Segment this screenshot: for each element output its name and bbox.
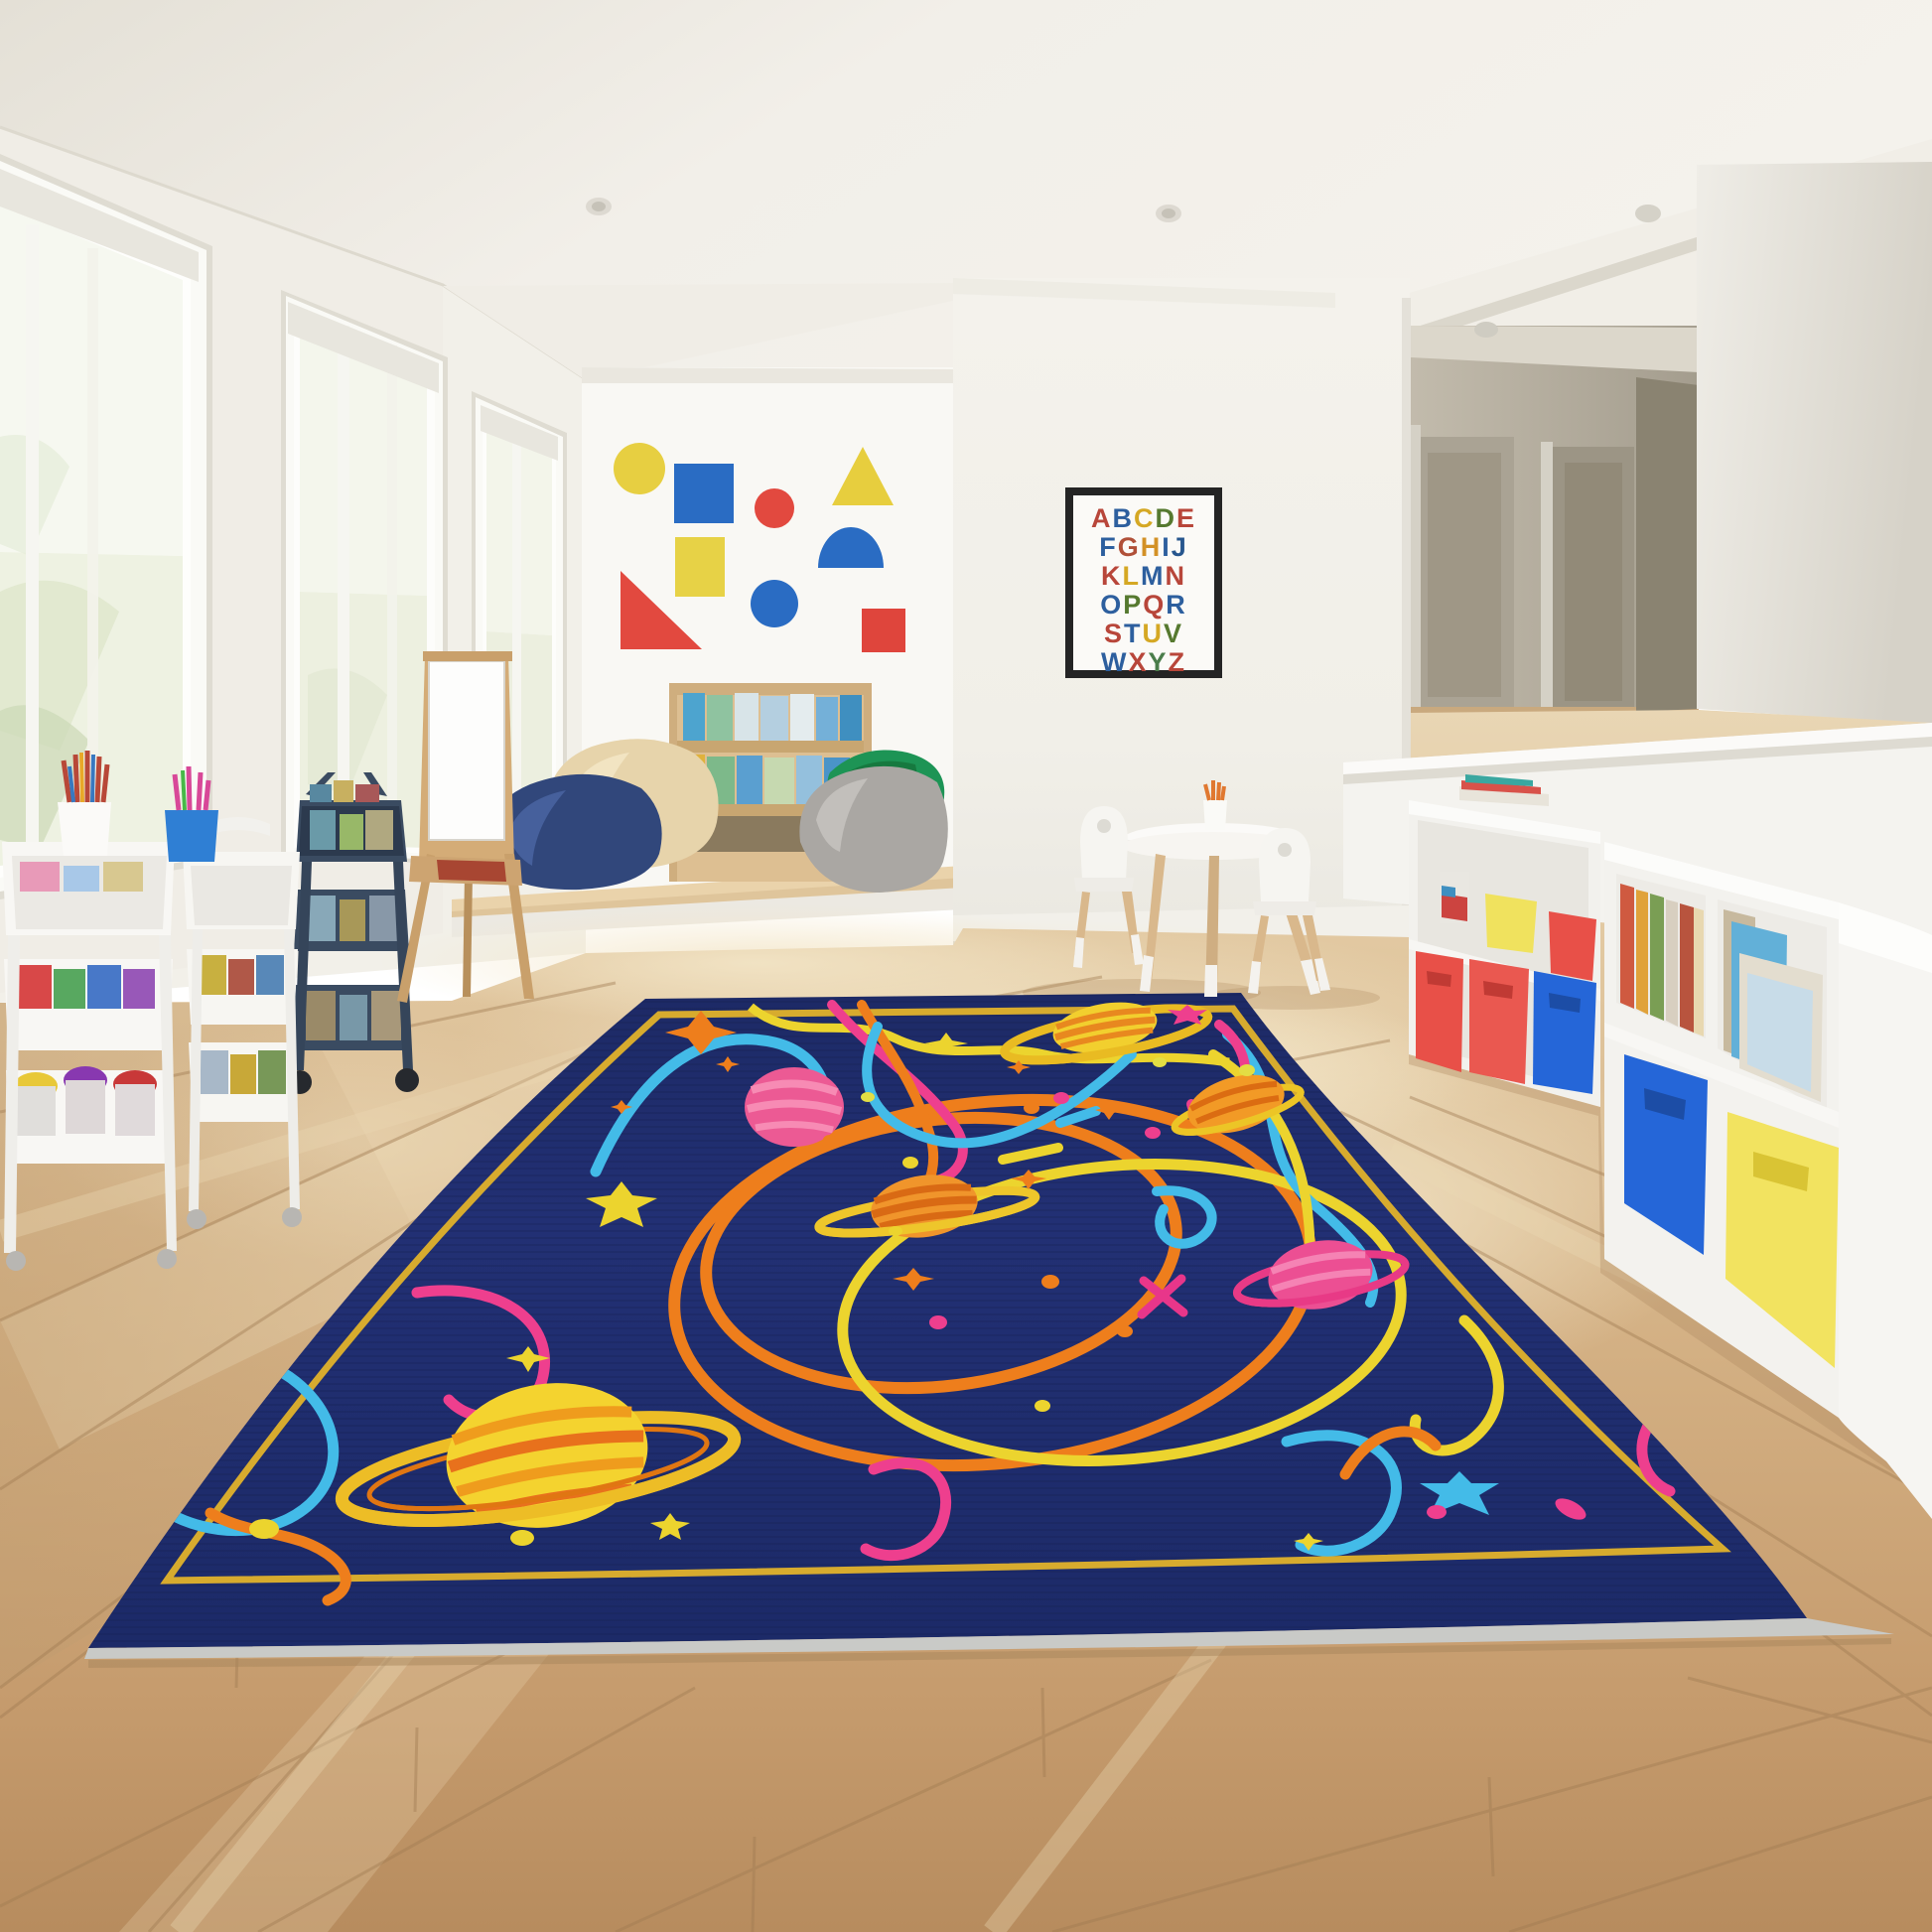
svg-text:KLMN: KLMN — [1101, 561, 1186, 591]
svg-text:WXYZ: WXYZ — [1101, 647, 1186, 677]
svg-text:OPQR: OPQR — [1100, 590, 1187, 620]
svg-text:FGHIJ: FGHIJ — [1099, 532, 1188, 562]
svg-text:STUV: STUV — [1104, 619, 1183, 648]
svg-text:ABCDE: ABCDE — [1091, 503, 1196, 533]
